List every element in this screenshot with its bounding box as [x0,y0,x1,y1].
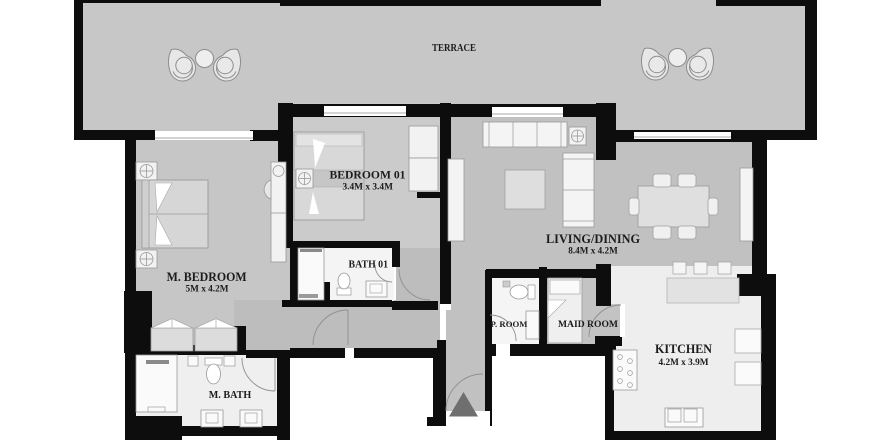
svg-text:P. ROOM: P. ROOM [491,319,529,329]
svg-text:LIVING/DINING: LIVING/DINING [546,232,640,246]
svg-text:BEDROOM 01: BEDROOM 01 [330,168,406,182]
svg-text:4.2M x 3.9M: 4.2M x 3.9M [659,358,709,368]
svg-text:TERRACE: TERRACE [432,42,476,54]
svg-text:8.4M x 4.2M: 8.4M x 4.2M [568,247,618,257]
svg-text:3.4M x 3.4M: 3.4M x 3.4M [342,183,393,193]
svg-text:5M x 4.2M: 5M x 4.2M [186,285,229,295]
svg-text:KITCHEN: KITCHEN [655,342,712,356]
svg-text:BATH 01: BATH 01 [349,260,389,271]
svg-text:MAID ROOM: MAID ROOM [558,319,618,330]
svg-text:M. BATH: M. BATH [209,390,252,401]
svg-text:M. BEDROOM: M. BEDROOM [167,270,247,284]
